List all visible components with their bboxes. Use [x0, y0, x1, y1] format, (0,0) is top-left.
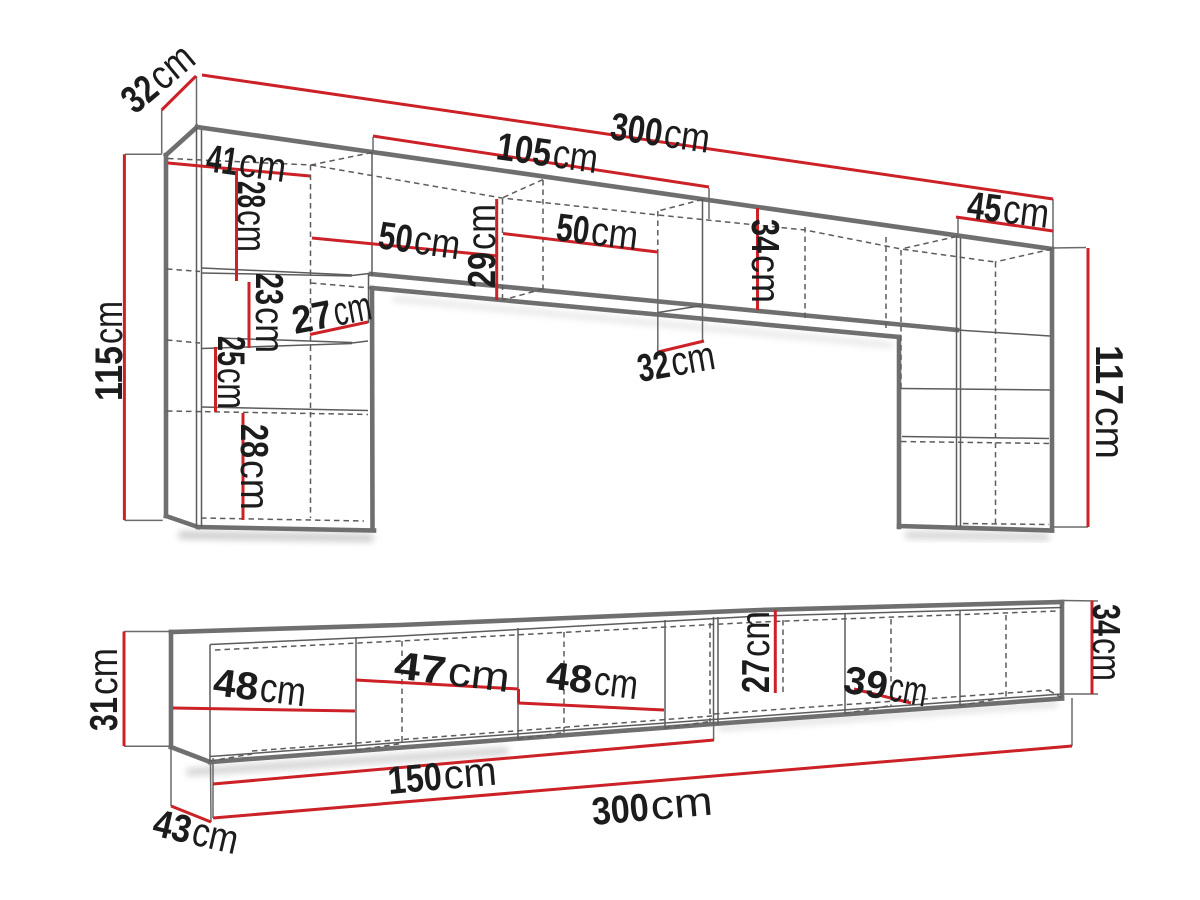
- svg-text:cm: cm: [592, 657, 641, 708]
- svg-text:29: 29: [461, 252, 504, 288]
- svg-text:48: 48: [544, 654, 595, 702]
- svg-text:cm: cm: [85, 301, 131, 344]
- svg-text:41: 41: [204, 137, 241, 184]
- svg-text:cm: cm: [1001, 186, 1052, 237]
- svg-text:27: 27: [735, 659, 778, 693]
- svg-text:cm: cm: [550, 130, 601, 182]
- svg-text:45: 45: [965, 184, 1004, 231]
- svg-text:cm: cm: [589, 208, 641, 259]
- svg-text:cm: cm: [1084, 638, 1130, 681]
- svg-text:23: 23: [247, 273, 290, 305]
- svg-text:105: 105: [494, 125, 554, 175]
- svg-text:cm: cm: [209, 368, 255, 409]
- svg-text:47: 47: [392, 644, 449, 693]
- svg-text:115: 115: [88, 346, 131, 401]
- svg-text:300: 300: [608, 105, 665, 155]
- svg-text:cm: cm: [247, 307, 293, 353]
- svg-text:48: 48: [211, 661, 261, 709]
- svg-text:150: 150: [386, 755, 444, 803]
- svg-text:50: 50: [376, 214, 416, 261]
- svg-text:34: 34: [743, 219, 786, 253]
- svg-text:34: 34: [1084, 604, 1127, 636]
- svg-text:25: 25: [209, 336, 252, 366]
- svg-text:cm: cm: [411, 216, 463, 268]
- svg-text:cm: cm: [229, 210, 275, 252]
- svg-text:27: 27: [289, 293, 336, 343]
- svg-text:300: 300: [590, 786, 651, 834]
- svg-text:50: 50: [554, 206, 592, 253]
- svg-text:cm: cm: [661, 110, 713, 162]
- svg-text:cm: cm: [458, 204, 504, 250]
- svg-text:cm: cm: [232, 460, 278, 510]
- svg-text:31: 31: [83, 697, 126, 731]
- svg-text:117: 117: [1087, 345, 1130, 405]
- svg-text:cm: cm: [732, 611, 778, 657]
- svg-text:cm: cm: [80, 648, 126, 695]
- svg-text:cm: cm: [1087, 407, 1133, 459]
- svg-text:cm: cm: [258, 664, 309, 715]
- svg-text:28: 28: [232, 424, 275, 458]
- svg-text:cm: cm: [886, 664, 931, 716]
- svg-text:cm: cm: [649, 778, 715, 829]
- svg-text:cm: cm: [442, 748, 499, 798]
- svg-text:cm: cm: [743, 255, 789, 303]
- svg-text:cm: cm: [667, 332, 718, 385]
- svg-text:39: 39: [840, 659, 891, 709]
- svg-text:28: 28: [229, 181, 272, 208]
- svg-text:cm: cm: [446, 648, 513, 701]
